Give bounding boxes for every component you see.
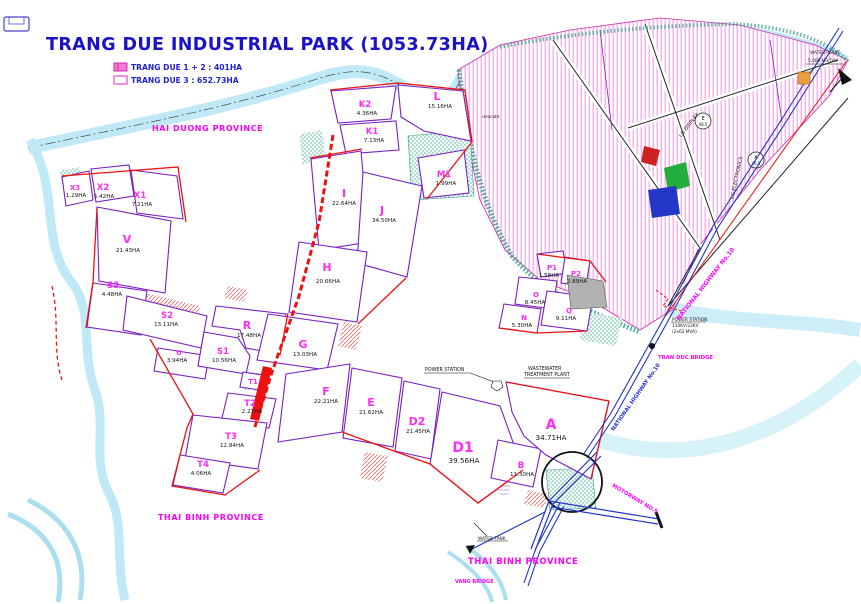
zone-area-A: 34.71HA <box>536 433 567 442</box>
zone-label-M1: M1 <box>437 170 451 180</box>
zone-label-B: B <box>518 461 524 471</box>
page-title: TRANG DUE INDUSTRIAL PARK (1053.73HA) <box>46 35 489 55</box>
zone-area-K2: 4.36HA <box>357 111 378 117</box>
zone-area-M1: 1.99HA <box>436 181 457 187</box>
zone-area-T4: 4.06HA <box>191 471 212 477</box>
note-label: relocate <box>482 114 500 120</box>
zone-label-A: A <box>546 417 557 433</box>
zone-label-I: I <box>342 187 346 200</box>
zone-area-G: 13.03HA <box>293 352 317 358</box>
trang-due-1-2-area: E 48.5 A 46.5 LG DISPLAY LG ELECTRONICS <box>458 18 848 332</box>
motorway-label: MOTORWAY NO.5 <box>611 483 659 515</box>
zone-label-S1: S1 <box>217 347 229 357</box>
water-plant-label-2: 5.000 M3/DAY <box>808 58 838 64</box>
zone-label-J: J <box>379 204 384 217</box>
wastewater-label-2: TREATMENT PLANT <box>523 372 570 378</box>
zone-area-O: 8.45HA <box>525 300 546 306</box>
legend-swatch-outline <box>114 76 127 84</box>
zone-label-K2: K2 <box>359 100 372 110</box>
zone-label-E: E <box>367 396 375 409</box>
zone-area-N: 5.30HA <box>512 323 533 329</box>
zone-area-T2: 2.21HA <box>242 409 263 415</box>
zone-area-K1: 7.13HA <box>364 138 385 144</box>
tran-duc-bridge-symbol <box>649 343 655 349</box>
power-station-leader <box>424 373 497 383</box>
zone-area-S3: 4.48HA <box>102 292 123 298</box>
zone-area-T3: 12.84HA <box>220 443 244 449</box>
lot-blue <box>648 186 680 218</box>
zone-label-T1: T1 <box>248 378 258 386</box>
zone-label-G: G <box>298 338 307 351</box>
zone-label-O: O <box>533 291 539 299</box>
zone-label-R: R <box>243 319 252 332</box>
corner-icon-inner <box>9 17 24 24</box>
zone-area-X2: 5.42HA <box>94 194 115 200</box>
zone-label-Q: Q <box>566 307 572 315</box>
zone-area-D2: 21.45HA <box>406 429 430 435</box>
zone-label-X3: X3 <box>70 184 80 192</box>
zone-label-T2: T2 <box>244 399 256 409</box>
zone-label-S3: S3 <box>107 281 119 291</box>
legend-item-1: TRANG DUE 1 + 2 : 401HA <box>131 63 242 72</box>
parcel-b <box>491 440 541 487</box>
industrial-park-map: E 48.5 A 46.5 LG DISPLAY LG ELECTRONICS <box>0 0 861 604</box>
zone-area-I: 22.64HA <box>332 201 356 207</box>
zone-label-H: H <box>322 261 331 274</box>
zone-area-Q: 9.11HA <box>556 316 577 322</box>
red-patch-r <box>224 286 248 302</box>
zone-area-U: 3.94HA <box>167 358 188 364</box>
north-arrow-icon <box>838 68 852 85</box>
river-west <box>30 140 125 600</box>
power-station-symbol <box>491 381 503 391</box>
zone-label-U: U <box>176 349 182 357</box>
zone-label-X1: X1 <box>134 191 147 201</box>
thai-binh-province-label-2: THAI BINH PROVINCE <box>468 556 578 566</box>
zone-label-T3: T3 <box>225 432 237 442</box>
zone-label-N: N <box>521 314 527 322</box>
river-vang <box>448 546 506 602</box>
lot-circle-e-value: 48.5 <box>699 122 708 127</box>
road-end-bar <box>656 512 662 528</box>
vang-bridge-label: VANG BRIDGE <box>455 579 494 585</box>
zone-area-B: 11.30HA <box>510 472 534 478</box>
zone-label-K1: K1 <box>366 127 379 137</box>
tran-duc-bridge-label: TRAN DUC BRIDGE <box>658 355 713 361</box>
zone-label-F: F <box>322 385 330 398</box>
red-patch-e <box>360 452 388 482</box>
nh10-label-lower: NATIONAL HIGHWAY No.10 <box>611 362 662 432</box>
zone-area-X1: 7.21HA <box>132 202 153 208</box>
substation-label-2: 110KV/22KV <box>672 323 699 329</box>
zone-label-V: V <box>123 233 132 246</box>
zone-area-L: 15.16HA <box>428 104 452 110</box>
river-southwest <box>8 500 82 602</box>
legend-swatch-filled <box>114 63 127 71</box>
zone-area-R: 17.48HA <box>237 333 261 339</box>
water-plant-symbol <box>798 72 810 84</box>
zone-area-J: 34.50HA <box>372 218 396 224</box>
zone-label-T4: T4 <box>197 460 209 470</box>
power-station-label: POWER STATION <box>425 367 465 373</box>
red-patch-g <box>338 322 362 350</box>
thai-binh-province-label-1: THAI BINH PROVINCE <box>158 513 264 522</box>
river-southeast <box>600 365 860 450</box>
zone-area-S1: 10.56HA <box>212 358 236 364</box>
existing-park-boundary <box>458 18 848 330</box>
zone-area-H: 20.66HA <box>316 279 340 285</box>
map-canvas: E 48.5 A 46.5 LG DISPLAY LG ELECTRONICS <box>0 0 861 604</box>
parcel-j <box>357 172 422 277</box>
title-block: TRANG DUE INDUSTRIAL PARK (1053.73HA) TR… <box>4 17 489 85</box>
hai-duong-province-label: HAI DUONG PROVINCE <box>152 124 263 133</box>
zone-area-D1: 39.56HA <box>449 456 480 465</box>
water-plant-label-1: WATER PLANT <box>810 50 841 56</box>
zone-area-V: 21.43HA <box>116 248 140 254</box>
zone-label-X2: X2 <box>97 183 110 193</box>
zone-area-X3: 1.29HA <box>66 193 87 199</box>
zone-label-S2: S2 <box>161 311 173 321</box>
zone-area-P2: 2.89HA <box>567 279 588 285</box>
zone-label-L: L <box>433 90 440 103</box>
zone-label-P1: P1 <box>547 264 557 272</box>
zone-label-P2: P2 <box>571 270 581 278</box>
legend-item-2: TRANG DUE 3 : 652.73HA <box>131 76 239 85</box>
zone-label-D2: D2 <box>409 415 426 428</box>
zone-area-E: 21.62HA <box>359 410 383 416</box>
zone-area-F: 22.21HA <box>314 399 338 405</box>
zone-label-D1: D1 <box>452 440 473 456</box>
wastewater-label-1: WASTEWATER <box>528 366 562 372</box>
zone-area-P1: 1.58HA <box>539 273 560 279</box>
zone-area-S2: 13.11HA <box>154 322 178 328</box>
substation-label-3: (2x63 MVA) <box>672 329 697 335</box>
